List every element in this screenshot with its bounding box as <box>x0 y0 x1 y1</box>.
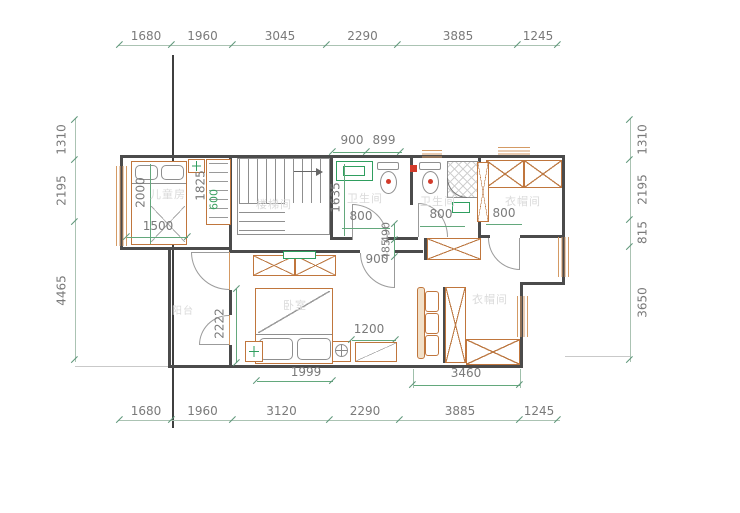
room-label-stairwell: 楼梯间 <box>256 196 292 212</box>
dim-children-bed-width: 1500 <box>138 220 178 233</box>
tv <box>283 251 316 259</box>
sofa-cushion <box>425 291 439 312</box>
dim-left-1: 1310 <box>56 120 69 160</box>
dim-top-2: 1960 <box>172 30 233 43</box>
sofa-cushion <box>425 313 439 334</box>
door-leaf <box>199 344 229 345</box>
toilet-marker <box>428 179 433 184</box>
door-sill <box>229 252 232 290</box>
window <box>558 237 569 277</box>
dim-closet-bottom: 3460 <box>441 367 491 380</box>
room-label-bedroom: 卧室 <box>283 297 307 313</box>
inner-dim-line <box>236 289 237 363</box>
dim-bottom-4: 2290 <box>330 405 400 418</box>
dim-line-bottom <box>118 420 560 421</box>
dim-line-top <box>118 45 560 46</box>
dim-bed-width: 2222 <box>214 304 227 344</box>
dim-bench: 1200 <box>344 323 394 336</box>
room-label-balcony: 阳台 <box>172 302 194 317</box>
bench <box>355 342 397 362</box>
dim-line-right <box>630 118 631 362</box>
extension-line <box>75 366 168 367</box>
wall <box>120 247 232 250</box>
bed-line <box>256 334 332 335</box>
dim-bottom-2: 1960 <box>172 405 233 418</box>
floor-plan-canvas: 1680 1960 3045 2290 3885 1245 1680 1960 … <box>0 0 740 513</box>
door-leaf <box>418 203 419 237</box>
dim-right-3: 815 <box>637 213 650 253</box>
wardrobe <box>486 160 524 188</box>
inner-dim-line <box>127 237 188 238</box>
dim-bath1-top-right: 899 <box>364 134 404 147</box>
dim-children-bed-length: 2000 <box>135 176 148 210</box>
toilet-marker <box>386 179 391 184</box>
stair-arrow-head <box>316 168 323 176</box>
dim-closet-top-door: 800 <box>484 207 524 220</box>
door-arc <box>191 252 229 290</box>
wardrobe <box>445 287 466 363</box>
pillow <box>259 338 293 360</box>
wall <box>229 290 232 315</box>
inner-dim-line <box>333 152 402 153</box>
dim-right-1: 1310 <box>637 120 650 160</box>
window <box>517 296 528 337</box>
stair-arrow-line <box>294 171 318 172</box>
dim-left-2: 2195 <box>56 171 69 211</box>
wall <box>424 238 427 260</box>
wardrobe <box>466 339 520 365</box>
dim-left-3: 4465 <box>56 271 69 311</box>
nightstand-plant-icon <box>249 346 259 357</box>
wall <box>168 247 171 368</box>
inner-dim-line <box>486 224 522 225</box>
room-label-bath1: 卫生间 <box>347 190 383 206</box>
wardrobe <box>524 160 562 188</box>
window <box>116 166 127 246</box>
dim-right-4: 3650 <box>637 283 650 323</box>
dim-top-1: 1680 <box>120 30 172 43</box>
pillow <box>297 338 331 360</box>
dim-bed-length: 1999 <box>281 366 331 379</box>
dim-top-3: 3045 <box>233 30 327 43</box>
dim-top-6: 1245 <box>518 30 558 43</box>
door-leaf <box>191 252 229 253</box>
door-arc <box>488 238 520 270</box>
wall <box>333 237 352 240</box>
window <box>498 147 530 156</box>
dim-right-2: 2195 <box>637 170 650 210</box>
sofa-back <box>417 287 425 359</box>
extension-line <box>520 369 521 388</box>
inner-dim-line <box>257 381 333 382</box>
room-label-children: 儿童房 <box>150 186 186 202</box>
dim-closet-width: 600 <box>208 186 221 214</box>
wall <box>395 250 423 253</box>
pillow <box>161 165 184 180</box>
inner-dim-line <box>344 164 345 236</box>
toilet-tank <box>377 162 399 170</box>
toilet-tank <box>419 162 441 170</box>
dim-top-4: 2290 <box>327 30 398 43</box>
inner-dim-line <box>352 340 396 341</box>
extension-line <box>565 356 630 357</box>
inner-dim-line <box>420 226 465 227</box>
dim-bath1-door: 800 <box>341 210 381 223</box>
dim-top-5: 3885 <box>398 30 518 43</box>
dim-bottom-1: 1680 <box>120 405 172 418</box>
window <box>422 150 442 158</box>
wall-marker <box>410 165 417 172</box>
dim-bottom-6: 1245 <box>520 405 558 418</box>
extension-line <box>413 369 414 388</box>
room-label-closet-bottom: 衣帽间 <box>472 291 508 307</box>
sink <box>343 166 365 176</box>
dim-bottom-5: 3885 <box>400 405 520 418</box>
dim-tick <box>71 356 78 363</box>
inner-dim-line <box>413 385 520 386</box>
sofa-cushion <box>425 335 439 356</box>
wall <box>229 345 232 367</box>
dim-tick <box>626 356 633 363</box>
door-leaf <box>519 238 520 270</box>
lamp-icon <box>335 344 348 357</box>
dim-bath2: 800 <box>421 208 461 221</box>
dim-closet-depth: 1825 <box>195 169 208 203</box>
door-sill <box>229 315 232 345</box>
dim-bottom-3: 3120 <box>233 405 330 418</box>
wall <box>520 282 565 285</box>
dim-hall-door: 900 <box>357 253 397 266</box>
wardrobe <box>427 238 481 260</box>
dim-line-left <box>75 118 76 362</box>
